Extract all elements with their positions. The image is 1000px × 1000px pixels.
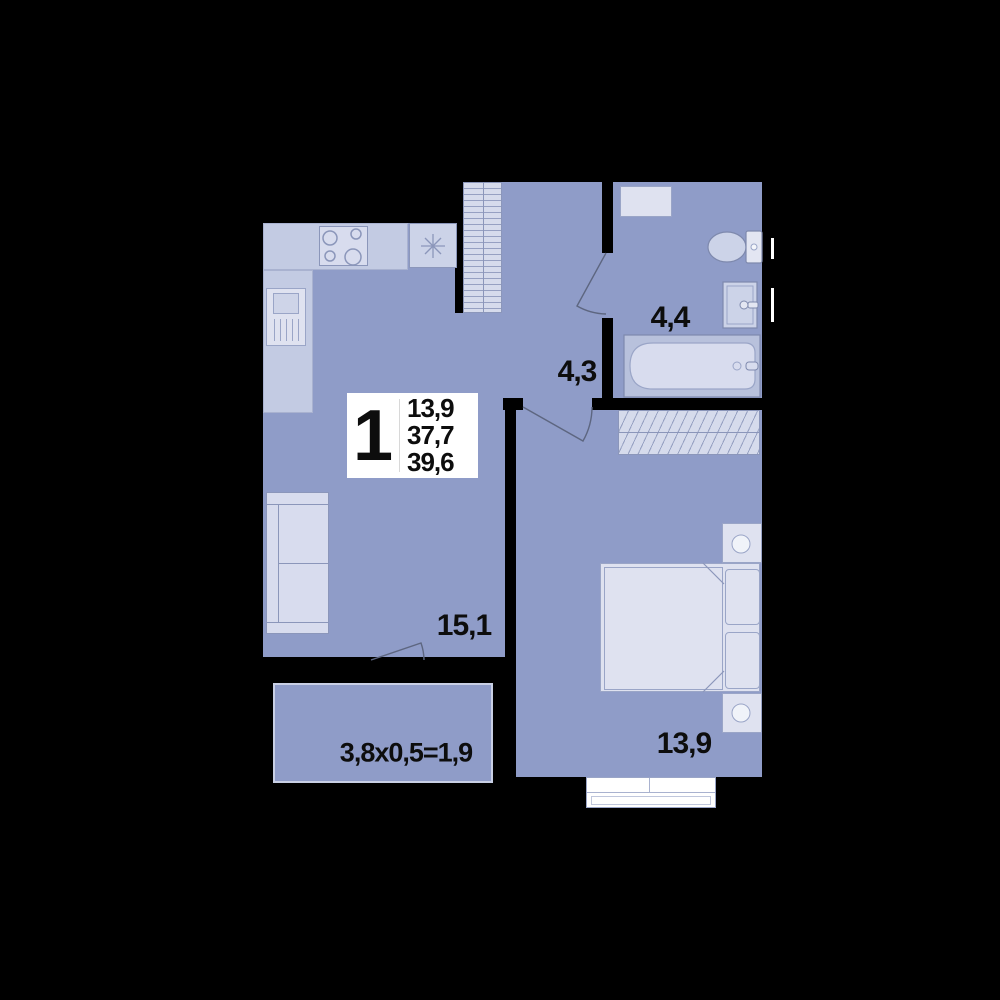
unit-info-box: 1 13,9 37,7 39,6: [347, 393, 478, 478]
bedroom-wardrobe-icon: [618, 410, 760, 455]
window-divider-line: [649, 778, 650, 792]
floor-plan: 15,1 4,3 4,4 13,9 3,8x0,5=1,9 1 13,9 37,…: [0, 0, 1000, 1000]
fridge-vents: [274, 319, 300, 341]
washing-machine-icon: [620, 186, 672, 217]
area-without-balcony-value: 37,7: [407, 422, 478, 449]
rooms-count: 1: [347, 393, 399, 478]
wardrobe-divider-line: [483, 183, 484, 312]
hallway-area-label: 4,3: [558, 355, 597, 389]
bed-icon: [600, 563, 760, 692]
living-area-value: 13,9: [407, 395, 478, 422]
mattress: [604, 567, 723, 690]
bedroom-door-opening: [523, 398, 592, 410]
window-frame-inner: [591, 796, 711, 805]
hall-wardrobe-icon: [463, 182, 502, 313]
sofa-icon: [266, 492, 329, 634]
nightstand-icon: [722, 693, 762, 733]
wall-living-bedroom: [505, 398, 516, 777]
stove-icon: [319, 226, 368, 266]
bedroom-window: [586, 777, 716, 808]
total-area-value: 39,6: [407, 449, 478, 476]
kitchen-living-area-label: 15,1: [437, 609, 491, 643]
wall-tick-marks: [771, 238, 774, 322]
bathroom-door-opening: [602, 253, 613, 318]
fridge-door: [273, 293, 299, 314]
window-sill-line: [587, 792, 715, 793]
bedroom-area-label: 13,9: [657, 727, 711, 761]
sofa-armrest-line: [267, 622, 328, 623]
pillow: [725, 632, 760, 689]
nightstand-icon: [722, 523, 762, 563]
bathroom-area-label: 4,4: [651, 301, 690, 335]
kitchen-sink-icon: [409, 223, 457, 268]
pillow: [725, 569, 760, 625]
sofa-armrest-line: [267, 504, 328, 505]
balcony-area-label: 3,8x0,5=1,9: [340, 738, 472, 769]
wardrobe-shelf-line: [619, 432, 759, 433]
sofa-cushion-line: [278, 563, 328, 564]
fridge-icon: [266, 288, 306, 346]
